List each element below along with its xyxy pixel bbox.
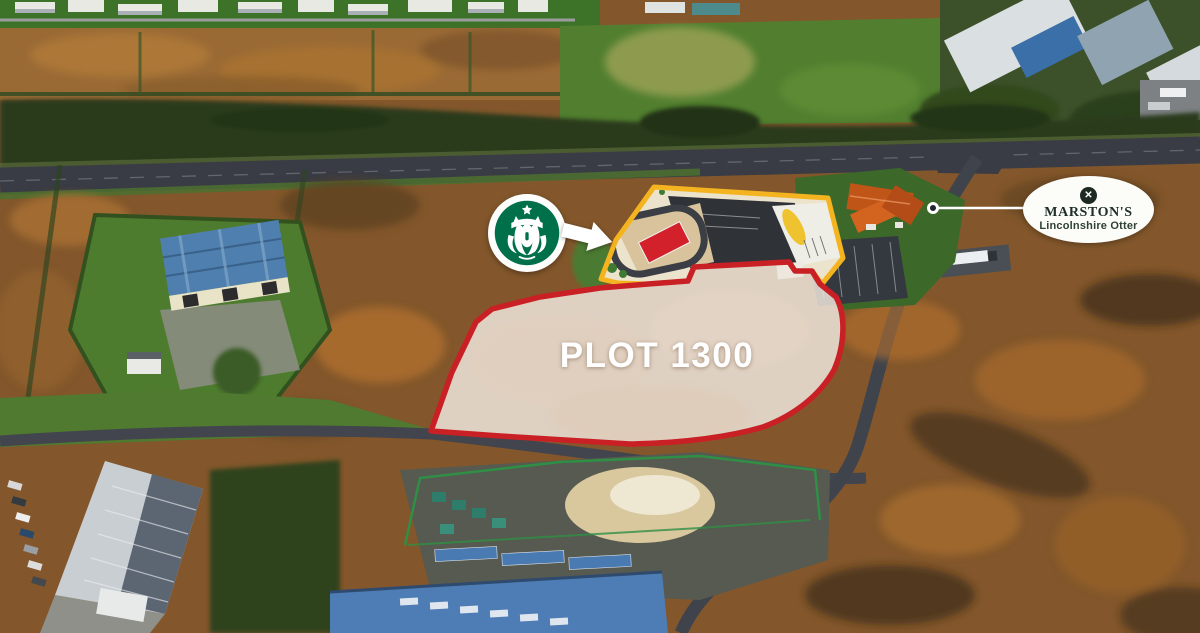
round-bush <box>213 348 261 396</box>
marstons-cross-emblem-icon: ✕ <box>1080 187 1097 204</box>
aerial-photo-canvas <box>0 0 1200 633</box>
starbucks-siren-icon <box>492 198 562 268</box>
aerial-site-photo: PLOT 1300 ✕ MARSTON'S Lincolnshire Otter <box>0 0 1200 633</box>
marstons-subtitle: Lincolnshire Otter <box>1039 220 1137 233</box>
marstons-name: MARSTON'S <box>1044 205 1132 220</box>
plot-1300-label: PLOT 1300 <box>527 336 787 376</box>
marstons-badge: ✕ MARSTON'S Lincolnshire Otter <box>1023 176 1154 243</box>
arrow-icon <box>560 214 620 260</box>
starbucks-logo <box>488 194 566 272</box>
leader-marker <box>929 204 938 213</box>
